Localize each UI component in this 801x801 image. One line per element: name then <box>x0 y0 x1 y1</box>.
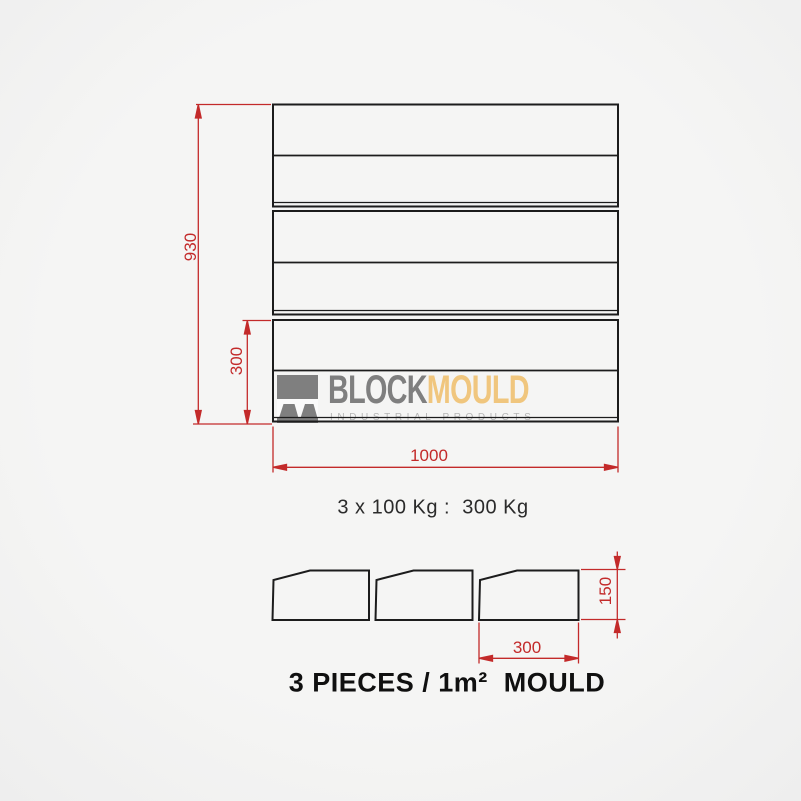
logo-word-block: BLOCK <box>328 368 427 412</box>
dim-label-930: 930 <box>181 233 201 261</box>
drawing-caption: 3 PIECES / 1m² MOULD <box>289 668 606 699</box>
arrow-up-icon <box>244 321 250 335</box>
weight-note: 3 x 100 Kg : 300 Kg <box>337 497 528 520</box>
mould-unit-2-outline <box>273 211 618 315</box>
block-piece-1 <box>273 571 370 621</box>
arrow-right-icon <box>565 655 579 661</box>
arrow-down-icon <box>614 557 620 570</box>
technical-drawing-canvas: BLOCKMOULD INDUSTRIAL PRODUCTS <box>0 0 801 801</box>
dim-label-150: 150 <box>596 577 616 605</box>
block-piece-3 <box>479 571 579 621</box>
blockmould-logo-icon <box>277 375 318 423</box>
dim-label-1000: 1000 <box>410 446 448 466</box>
arrow-left-icon <box>479 655 493 661</box>
block-pieces-view <box>273 571 579 621</box>
arrow-up-icon <box>195 105 201 119</box>
arrow-left-icon <box>273 464 287 470</box>
block-piece-2 <box>376 571 473 621</box>
arrow-down-icon <box>244 411 250 425</box>
arrow-down-icon <box>195 411 201 425</box>
arrow-up-icon <box>614 620 620 633</box>
dim-930 <box>193 105 272 425</box>
dim-label-300-piece: 300 <box>513 638 541 658</box>
logo-wordmark: BLOCKMOULD <box>328 370 529 410</box>
dim-label-300-row: 300 <box>227 347 247 375</box>
logo-subtitle: INDUSTRIAL PRODUCTS <box>330 412 535 423</box>
mould-unit-1-outline <box>273 105 618 207</box>
logo-word-mould: MOULD <box>427 368 529 412</box>
arrow-right-icon <box>605 464 619 470</box>
